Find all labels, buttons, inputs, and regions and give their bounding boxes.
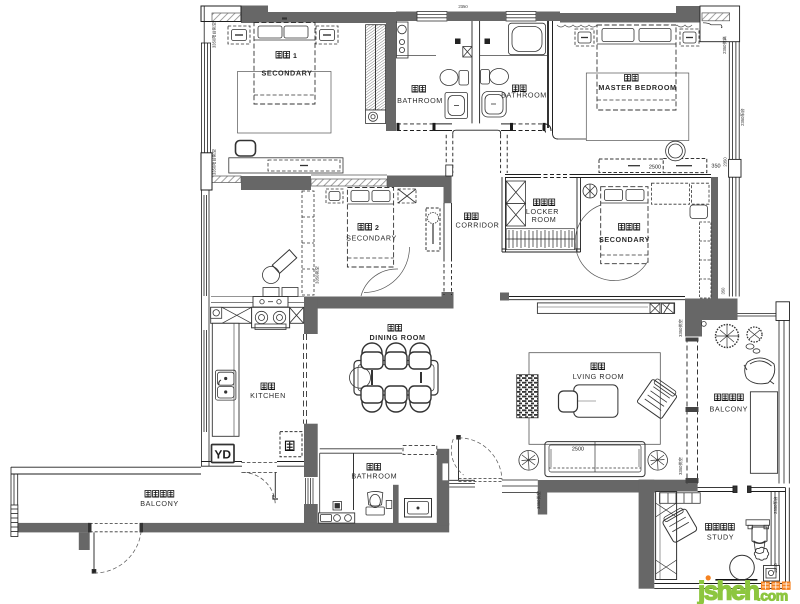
- svg-text:SECONDARY: SECONDARY: [599, 235, 650, 244]
- svg-text:SECONDARY: SECONDARY: [346, 234, 397, 243]
- svg-text:MASTER BEDROOM: MASTER BEDROOM: [598, 83, 676, 92]
- svg-text:KITCHEN: KITCHEN: [250, 391, 286, 400]
- svg-text:2350: 2350: [773, 563, 778, 573]
- svg-text:2350挑高: 2350挑高: [722, 36, 727, 54]
- svg-text:2: 2: [375, 225, 379, 232]
- svg-text:BATHROOM: BATHROOM: [397, 96, 443, 105]
- svg-text:350: 350: [721, 287, 726, 295]
- svg-text:BALCONY: BALCONY: [140, 499, 179, 508]
- svg-text:3350挑空: 3350挑空: [315, 266, 320, 284]
- svg-text:2350: 2350: [723, 157, 728, 167]
- svg-text:2350阳台: 2350阳台: [740, 108, 745, 126]
- svg-text:BATHROOM: BATHROOM: [351, 472, 397, 481]
- svg-text:BATHROOM: BATHROOM: [501, 91, 547, 100]
- svg-text:BALCONY: BALCONY: [710, 405, 749, 414]
- svg-text:3350阳台挑空: 3350阳台挑空: [212, 149, 217, 175]
- svg-text:1: 1: [293, 53, 297, 60]
- svg-text:3350阳台挑空: 3350阳台挑空: [212, 22, 217, 48]
- svg-text:ROOM: ROOM: [532, 215, 557, 224]
- svg-text:2350: 2350: [458, 4, 468, 9]
- svg-text:3350挑空: 3350挑空: [678, 457, 683, 475]
- svg-text:2350阳台: 2350阳台: [773, 496, 778, 514]
- svg-text:2500: 2500: [572, 447, 584, 453]
- svg-text:2500: 2500: [649, 165, 661, 171]
- svg-text:STUDY: STUDY: [707, 533, 734, 542]
- svg-text:jsheh: jsheh: [697, 576, 759, 604]
- svg-text:3350挑空: 3350挑空: [678, 319, 683, 337]
- svg-text:LVING ROOM: LVING ROOM: [573, 372, 624, 381]
- svg-text:SECONDARY: SECONDARY: [261, 69, 312, 78]
- svg-text:.com: .com: [757, 588, 788, 604]
- svg-text:3350挑空: 3350挑空: [536, 491, 541, 509]
- svg-text:DINING ROOM: DINING ROOM: [369, 333, 425, 342]
- svg-text:YD: YD: [214, 448, 231, 462]
- svg-text:CORRIDOR: CORRIDOR: [456, 221, 500, 230]
- svg-text:350: 350: [711, 164, 720, 170]
